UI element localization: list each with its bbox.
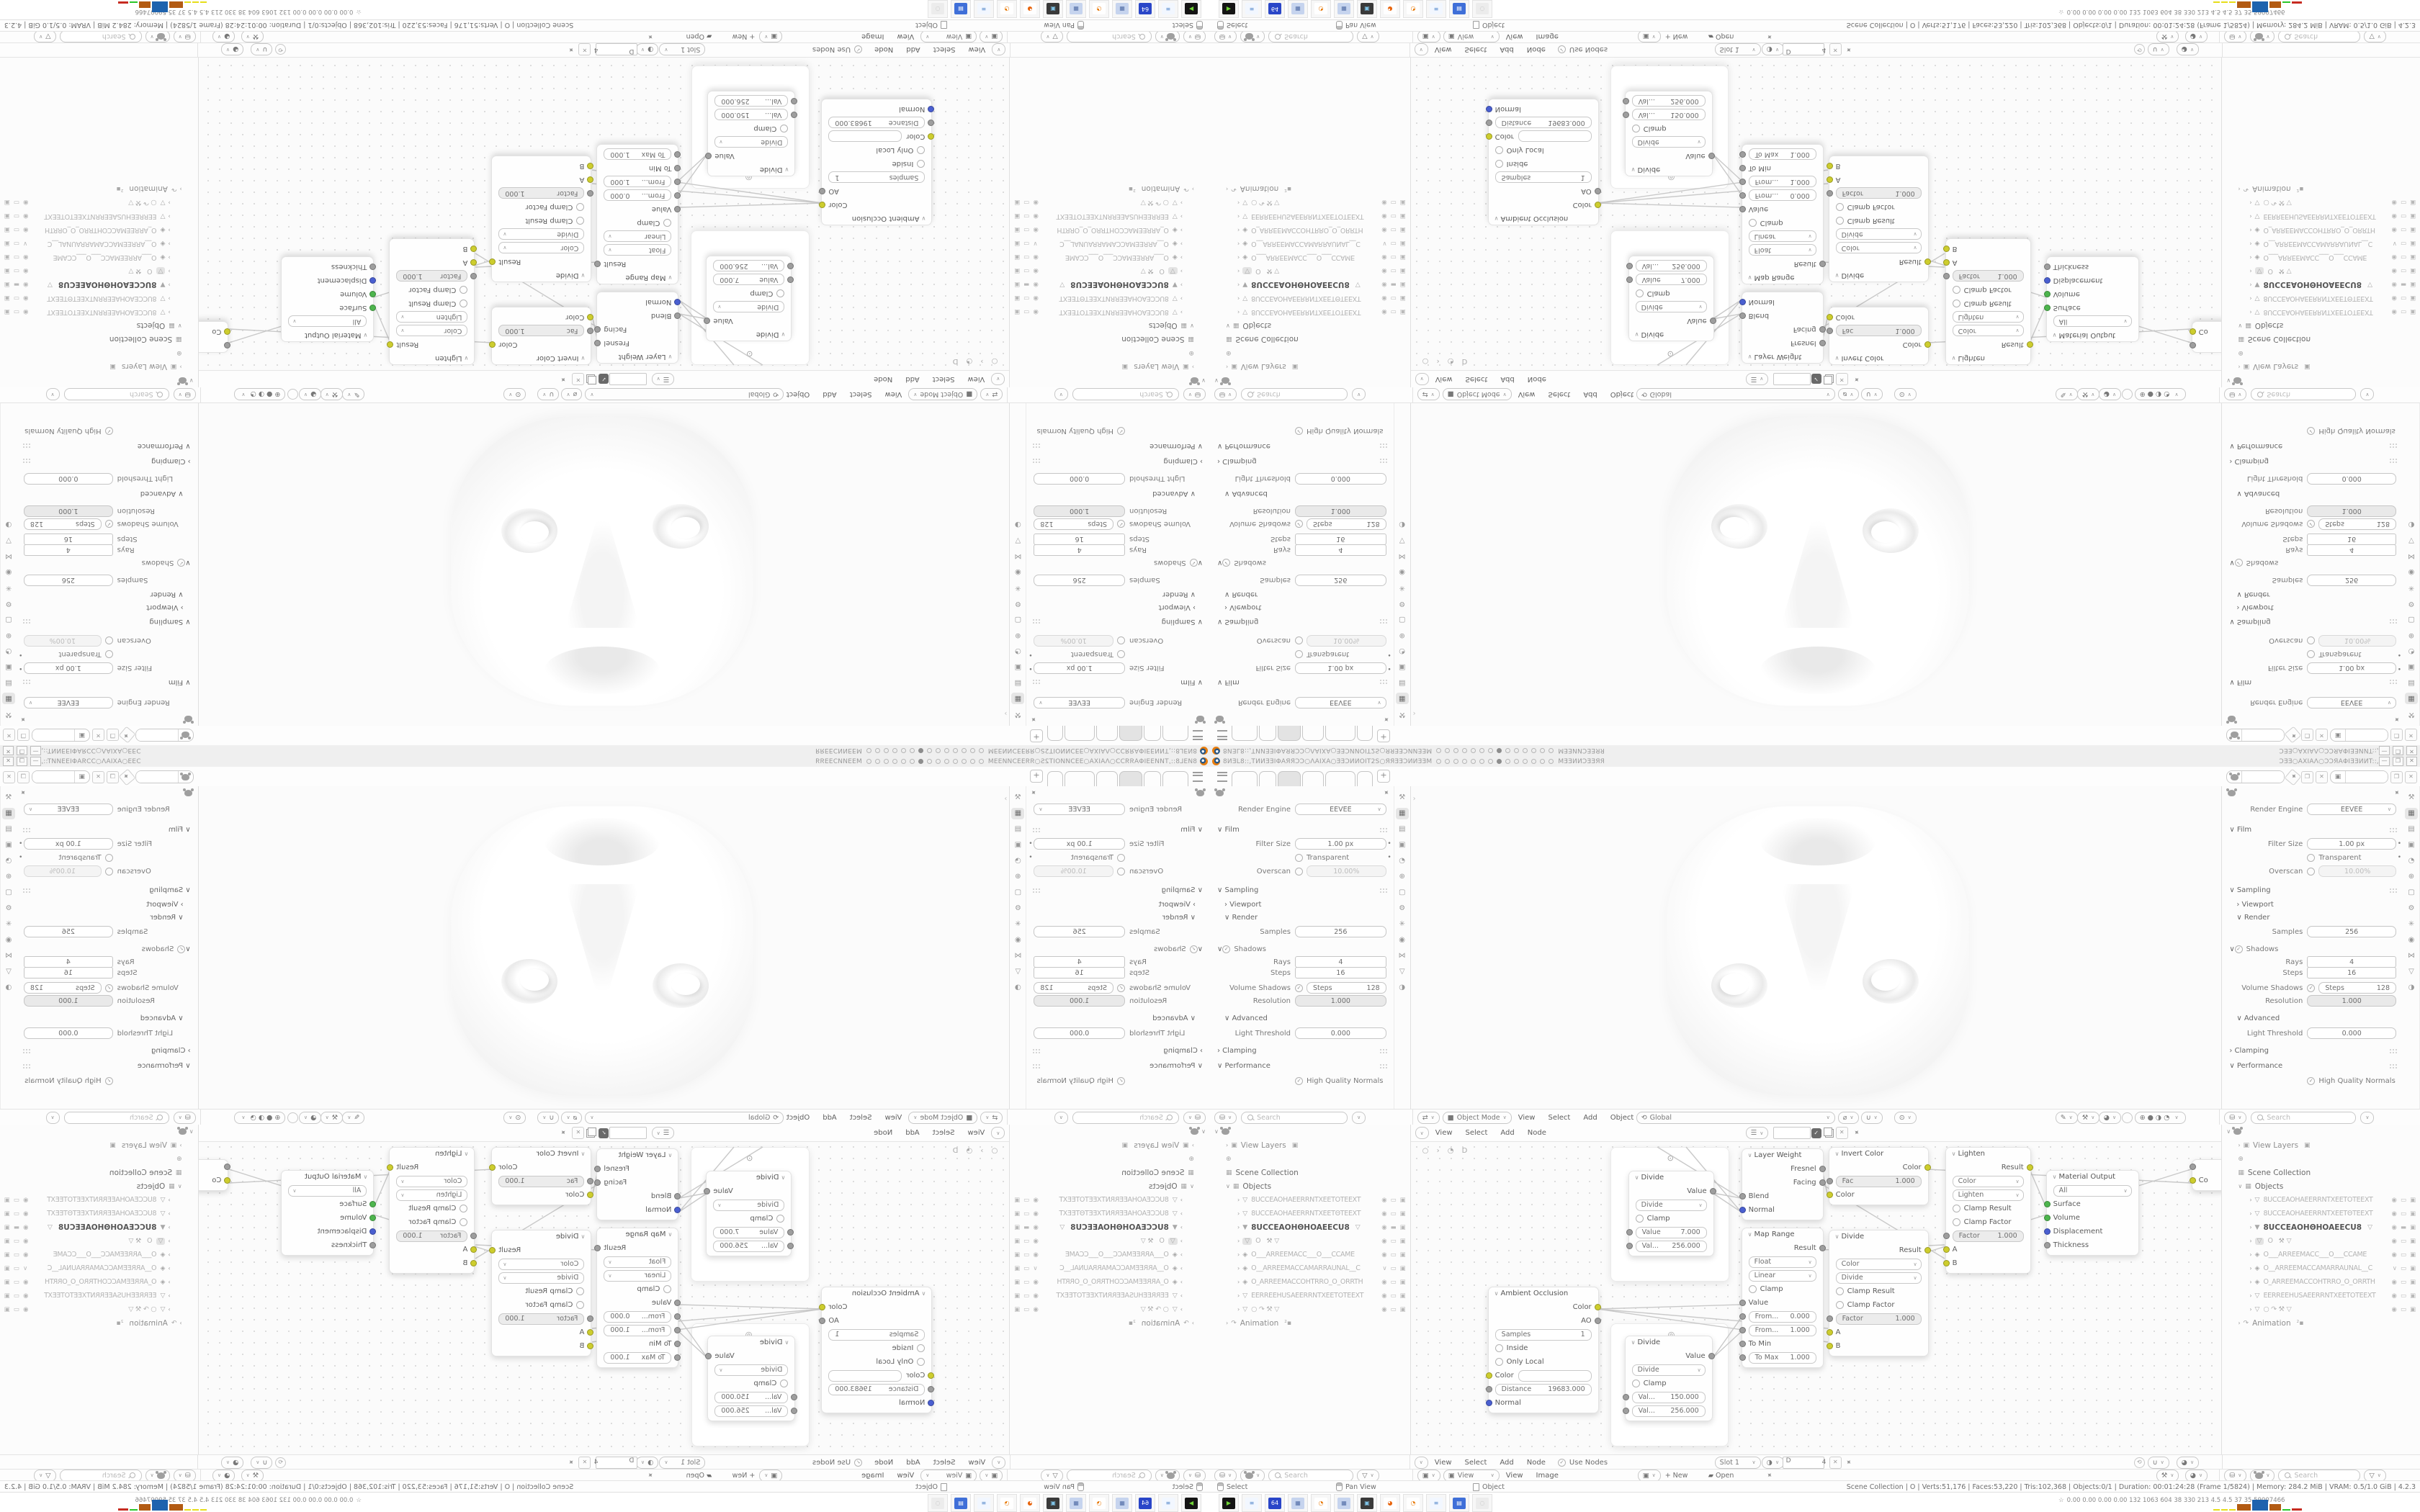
- menu-icon[interactable]: [1193, 730, 1203, 740]
- outliner-item-mesh[interactable]: ›▼8UCCEAOHΘHOAEECU8▽◉▬▣: [1010, 1220, 1210, 1234]
- input-socket[interactable]: [369, 291, 376, 297]
- visibility-toggles[interactable]: ◉▭▣: [1381, 1292, 1405, 1300]
- expand-caret[interactable]: ›: [1237, 1238, 1240, 1244]
- outliner-item-camera[interactable]: ›◈O_ARREEMACCOHTRRO_O_ORRTH◉▭▣: [1010, 1275, 1210, 1289]
- input-socket[interactable]: [224, 328, 230, 335]
- expand-caret[interactable]: ›: [168, 1197, 170, 1203]
- camera-icon[interactable]: ∨: [23, 1265, 27, 1272]
- scene-icon[interactable]: ◔: [1011, 855, 1024, 867]
- node-row-fac[interactable]: Fac1.000: [492, 1174, 591, 1188]
- shader-node-ambient-occlusion[interactable]: ∨Ambient OcclusionColorAOSamples1InsideO…: [1488, 99, 1599, 225]
- visibility-toggles[interactable]: ◉▭▣: [1381, 309, 1405, 316]
- expand-caret[interactable]: ›: [1237, 1197, 1240, 1203]
- checkbox[interactable]: [2307, 651, 2315, 659]
- constraints-icon[interactable]: ⋈: [1396, 950, 1409, 962]
- outliner-item-mesh[interactable]: ›▽8UCCEAOHAEERRNTXEETOTEEXT◉▭▣: [1210, 305, 1410, 319]
- expand-caret[interactable]: ›: [1237, 309, 1240, 315]
- input-socket[interactable]: [674, 299, 681, 305]
- node-select[interactable]: Color∨: [1836, 1259, 1922, 1270]
- outliner-item-anim[interactable]: ›↷Animation²▪: [1210, 1316, 1410, 1330]
- checkbox[interactable]: ✓: [1190, 559, 1198, 567]
- node-select[interactable]: Float∨: [604, 1256, 671, 1268]
- node-row-inside[interactable]: Inside: [822, 157, 931, 171]
- node-canvas[interactable]: ○ › ◔ Ⅾ ⊙◎∨DivideValueDivide∨ClampValue7…: [199, 58, 1010, 371]
- value-field[interactable]: 4: [2307, 956, 2396, 968]
- material-icon[interactable]: ◑: [1011, 518, 1024, 530]
- overlays-button[interactable]: ◕∨: [212, 31, 235, 43]
- expand-caret[interactable]: ›: [168, 1265, 170, 1272]
- outliner-item-camera[interactable]: ›◈O_ARREEMACCOHTRRO_O_ORRTH◉▭▣: [1210, 223, 1410, 237]
- image-name-field[interactable]: [32, 729, 74, 741]
- value-field[interactable]: 256: [1295, 575, 1386, 586]
- printer-blue-icon[interactable]: ▤: [1449, 1494, 1469, 1512]
- node-checkbox[interactable]: [917, 1344, 925, 1352]
- media-player-icon[interactable]: ▶: [1219, 1494, 1239, 1512]
- node-row-from-[interactable]: From...0.000: [597, 189, 678, 202]
- constraints-icon[interactable]: ⋈: [2, 550, 15, 562]
- node-select[interactable]: Divide∨: [498, 229, 584, 240]
- node-checkbox[interactable]: [1953, 286, 1960, 294]
- input-socket[interactable]: [1943, 1233, 1950, 1239]
- workspace-tab[interactable]: [1278, 726, 1301, 741]
- visibility-toggles[interactable]: ◉▭▣: [2392, 1279, 2416, 1286]
- output-socket[interactable]: [594, 1166, 601, 1172]
- expand-caret[interactable]: ›: [1180, 1210, 1183, 1217]
- fake-user-button[interactable]: ✓: [599, 374, 609, 384]
- expand-caret[interactable]: ›: [1192, 1142, 1194, 1148]
- visibility-toggles[interactable]: ◉▭▣: [2392, 1251, 2416, 1259]
- workspace-tab[interactable]: [1232, 771, 1258, 786]
- screen-icon[interactable]: ▭: [1023, 1279, 1029, 1286]
- expand-caret[interactable]: ›: [2238, 364, 2240, 370]
- menu-select[interactable]: Select: [1465, 46, 1487, 54]
- unlink-material-button[interactable]: ✕: [572, 1127, 584, 1139]
- xray-toggle[interactable]: [2122, 390, 2133, 400]
- blender-icon-2[interactable]: ◔: [997, 0, 1017, 18]
- node-row-distance[interactable]: Distance19683.000: [1489, 1382, 1598, 1396]
- node-value-field[interactable]: From...1.000: [604, 176, 671, 188]
- node-row-factor[interactable]: Factor1.000: [390, 269, 474, 283]
- node-select[interactable]: Divide∨: [1836, 229, 1922, 240]
- eye-icon[interactable]: ◉: [1033, 1224, 1038, 1231]
- xray-toggle[interactable]: [287, 390, 298, 400]
- menu-object[interactable]: Object: [1610, 1114, 1634, 1122]
- menu-node[interactable]: Node: [874, 1129, 892, 1137]
- pin-icon[interactable]: ✦: [1764, 32, 1773, 42]
- screen-icon[interactable]: ▭: [1023, 199, 1029, 207]
- value-field[interactable]: 16: [2307, 967, 2396, 978]
- node-row-from-[interactable]: From...0.000: [597, 1310, 678, 1323]
- value-field[interactable]: 4: [1295, 544, 1386, 556]
- outliner-item-mesh[interactable]: ›▽8UCCEAOHAEERRNTXEETΘTEEXT◉▭▣: [1010, 1207, 1210, 1220]
- visibility-toggles[interactable]: ◉▭▣: [1014, 1197, 1038, 1204]
- node-row-factor[interactable]: Factor1.000: [1946, 269, 2030, 283]
- node-canvas[interactable]: ○ › ◔ Ⅾ ⊙◎∨DivideValueDivide∨ClampValue7…: [199, 1141, 1010, 1454]
- editor-type-button[interactable]: ▣∨: [980, 1470, 1003, 1482]
- output-socket[interactable]: [1819, 1179, 1826, 1186]
- node-title[interactable]: ∨Map Range: [1742, 1228, 1823, 1241]
- node-row-clamp-result[interactable]: Clamp Result: [1946, 1202, 2030, 1215]
- camera-icon[interactable]: ▣: [4, 282, 10, 289]
- outliner-item-mesh[interactable]: ›▽8UCCEAOHAEERRNTXEETOTEEXT◉▭▣: [0, 305, 198, 319]
- value-field[interactable]: 1.00 px: [1295, 662, 1386, 674]
- input-socket[interactable]: [1623, 98, 1629, 104]
- camera-icon[interactable]: ▣: [2410, 240, 2416, 248]
- screen-icon[interactable]: ▭: [1391, 213, 1397, 220]
- expand-caret[interactable]: ›: [1192, 1320, 1194, 1326]
- mode-selector[interactable]: ■ Object Mode∨: [1443, 389, 1512, 401]
- output-socket[interactable]: [819, 1304, 825, 1310]
- screen-icon[interactable]: ▭: [1023, 227, 1029, 234]
- node-value-field[interactable]: Val...150.000: [1632, 1392, 1706, 1403]
- workspace-tab[interactable]: [1232, 726, 1258, 741]
- new-image-button[interactable]: + New: [732, 33, 756, 41]
- outliner-search-input[interactable]: Search: [1268, 31, 1353, 43]
- node-select[interactable]: Linear∨: [1749, 1270, 1816, 1282]
- screen-icon[interactable]: ▭: [1391, 1279, 1397, 1286]
- outliner-item-mesh[interactable]: ›▽8UCCEAOHAEERRNTXEETΘTEEXT◉▭▣: [2222, 1207, 2420, 1220]
- node-value-field[interactable]: Factor1.000: [1953, 271, 2024, 282]
- screen-icon[interactable]: ▭: [2401, 1279, 2406, 1286]
- input-socket[interactable]: [587, 1178, 593, 1184]
- screen-icon[interactable]: ▭: [14, 1251, 19, 1259]
- camera-icon[interactable]: ▣: [2410, 1238, 2416, 1245]
- section-header[interactable]: › Viewport: [1159, 604, 1210, 612]
- node-row-clamp-result[interactable]: Clamp Result: [390, 297, 474, 310]
- editor-type-button[interactable]: ⇄∨: [1417, 389, 1440, 401]
- output-icon[interactable]: ▤: [2, 677, 15, 688]
- shader-node-lighten[interactable]: ∨LightenResultColor∨Lighten∨Clamp Result…: [1945, 238, 2031, 365]
- minimize-button[interactable]: —: [30, 746, 41, 755]
- material-icon[interactable]: ◑: [1011, 982, 1024, 994]
- expand-caret[interactable]: ›: [1237, 295, 1240, 302]
- checkbox[interactable]: ✓: [177, 945, 185, 953]
- node-row-val-[interactable]: Val...256.000: [708, 94, 794, 108]
- expand-panel-icon[interactable]: ›: [1413, 795, 1416, 803]
- pin-icon[interactable]: ✦: [1843, 45, 1852, 55]
- output-socket[interactable]: [594, 340, 601, 346]
- output-socket[interactable]: [594, 1245, 601, 1251]
- node-value-field[interactable]: Samples1: [828, 1329, 925, 1341]
- node-value-field[interactable]: Value7.000: [1636, 274, 1707, 286]
- shader-node-divide-color[interactable]: ∨DivideResultColor∨Divide∨Clamp ResultCl…: [1829, 1230, 1929, 1356]
- screen-icon[interactable]: ▬: [14, 1224, 19, 1231]
- input-socket[interactable]: [2190, 1177, 2196, 1184]
- screen-icon[interactable]: ▭: [1023, 1292, 1029, 1300]
- camera-icon[interactable]: ▣: [4, 309, 10, 316]
- output-socket[interactable]: [705, 153, 712, 159]
- node-title[interactable]: ∨Map Range: [597, 1228, 678, 1241]
- output-socket[interactable]: [2027, 1164, 2033, 1171]
- output-icon[interactable]: ▤: [1011, 677, 1024, 688]
- screen-icon[interactable]: ▭: [2401, 1265, 2406, 1272]
- decorator-dot[interactable]: •: [1387, 651, 1391, 658]
- particles-icon[interactable]: ✳: [1396, 919, 1409, 930]
- node-row-divide[interactable]: Divide∨: [492, 1271, 591, 1284]
- menu-view[interactable]: View: [885, 391, 902, 399]
- visibility-toggles[interactable]: ∨▭▣: [1014, 240, 1037, 248]
- outliner-search-input[interactable]: Search: [64, 389, 169, 401]
- node-row-clamp-result[interactable]: Clamp Result: [492, 1284, 591, 1298]
- camera-icon[interactable]: ▣: [1400, 1292, 1406, 1300]
- monitor-app-icon[interactable]: ▣: [1043, 1494, 1063, 1512]
- pin-icon[interactable]: ✦: [2391, 714, 2401, 724]
- printer-blue-icon[interactable]: ▤: [951, 0, 971, 18]
- node-row-clamp-factor[interactable]: Clamp Factor: [1946, 283, 2030, 297]
- physics-icon[interactable]: ◉: [1011, 935, 1024, 946]
- outliner-item-viewlayer[interactable]: ›▣View Layers▣: [1010, 1138, 1210, 1152]
- screen-icon[interactable]: ▬: [14, 282, 19, 289]
- outliner-item-mesh[interactable]: ›▽EERREEHUSAEERRNTXEETOTEEXT◉▭▣: [1010, 1289, 1210, 1302]
- outliner-filter-button[interactable]: ∨: [2360, 1112, 2374, 1124]
- collapse-caret[interactable]: ∨: [363, 332, 367, 338]
- material-name-field[interactable]: Ⅾ: [1783, 1457, 1824, 1469]
- eye-icon[interactable]: ◉: [2392, 295, 2397, 302]
- visibility-toggles[interactable]: ◉▭▣: [1381, 1238, 1405, 1245]
- node-title[interactable]: ∨Divide: [1829, 269, 1928, 282]
- input-socket[interactable]: [369, 305, 376, 311]
- image-view-mode[interactable]: ▣ View∨: [1443, 31, 1500, 43]
- section-header[interactable]: ∨ Advanced: [1210, 1014, 1268, 1022]
- output-icon[interactable]: ▤: [1396, 677, 1409, 688]
- visibility-toggles[interactable]: ◉▭▣: [1014, 213, 1038, 220]
- screen-icon[interactable]: ▬: [1023, 282, 1029, 289]
- outliner-item-mesh[interactable]: ›▽○ ↷ ⚒ ▽◉▭▣: [1210, 196, 1410, 210]
- maximize-button[interactable]: ❐: [17, 757, 27, 766]
- node-row-color[interactable]: Color∨: [1829, 1257, 1928, 1271]
- outliner-item-mesh[interactable]: ›▼8UCCEAOHΘHOAEECU8▽◉▬▣: [1210, 278, 1410, 292]
- color-swatch-field[interactable]: [828, 1370, 902, 1382]
- node-checkbox[interactable]: [460, 286, 467, 294]
- visibility-toggles[interactable]: ◉▭▣: [4, 268, 28, 275]
- shader-node-invert-color[interactable]: ∨Invert ColorColorFac1.000Color: [491, 307, 591, 365]
- mode-selector[interactable]: ■ Object Mode∨: [908, 389, 977, 401]
- node-row-factor[interactable]: Factor1.000: [1829, 1312, 1928, 1326]
- screen-icon[interactable]: ▭: [1023, 213, 1029, 220]
- output-socket[interactable]: [819, 202, 825, 208]
- expand-caret[interactable]: ›: [168, 227, 170, 233]
- section-header[interactable]: ∨ Advanced: [140, 1014, 198, 1022]
- node-title[interactable]: ∨Layer Weight: [597, 350, 678, 363]
- blender-icon-2[interactable]: ◔: [997, 1494, 1017, 1512]
- close-button[interactable]: ✕: [2406, 746, 2417, 755]
- section-header[interactable]: ∨ Render: [151, 591, 198, 599]
- editor-type-button[interactable]: ▣∨: [980, 31, 1003, 43]
- checkbox[interactable]: ✓: [1117, 428, 1125, 436]
- maximize-button[interactable]: ❐: [2393, 757, 2403, 766]
- section-header[interactable]: ∨ Sampling: [1210, 886, 1258, 894]
- input-socket[interactable]: [224, 342, 230, 348]
- use-nodes-checkbox[interactable]: ✓: [854, 1459, 862, 1467]
- section-header[interactable]: ∨ Render: [151, 914, 198, 922]
- particles-icon[interactable]: ✳: [2405, 582, 2418, 593]
- menu-view[interactable]: View: [897, 33, 914, 41]
- shader-node-material-output[interactable]: ∨Material OutputAll∨SurfaceVolumeDisplac…: [281, 1170, 374, 1256]
- node-row-factor[interactable]: Factor1.000: [1829, 186, 1928, 200]
- screen-icon[interactable]: ▭: [14, 295, 19, 302]
- eye-icon[interactable]: ◉: [1381, 268, 1386, 275]
- checkbox[interactable]: [105, 651, 113, 659]
- notepad-icon[interactable]: ≡: [1158, 0, 1178, 18]
- expand-caret[interactable]: ›: [2249, 309, 2251, 315]
- eye-icon[interactable]: ◉: [1381, 254, 1386, 261]
- shader-node-clipped-node[interactable]: Co: [2192, 321, 2222, 353]
- tool-icon[interactable]: ⚒: [2, 792, 15, 804]
- expand-caret[interactable]: ›: [168, 240, 170, 247]
- checkbox[interactable]: ✓: [1295, 1077, 1303, 1085]
- eye-icon[interactable]: ◉: [1381, 1279, 1386, 1286]
- outliner-item-mesh[interactable]: ›▼8UCCEAOHΘHOAEECU8▽◉▬▣: [1010, 278, 1210, 292]
- gizmo-button[interactable]: ⚒∨: [241, 1470, 264, 1482]
- output-socket[interactable]: [387, 1164, 393, 1171]
- collapse-caret[interactable]: ∨: [1748, 354, 1752, 360]
- node-row-only-local[interactable]: Only Local: [822, 1355, 931, 1369]
- material-icon[interactable]: ◑: [2, 518, 15, 530]
- shader-node-material-output[interactable]: ∨Material OutputAll∨SurfaceVolumeDisplac…: [281, 256, 374, 342]
- camera-icon[interactable]: ▣: [1014, 213, 1020, 220]
- shader-node-map-range[interactable]: ∨Map RangeResultFloat∨Linear∨ClampValueF…: [596, 1228, 678, 1368]
- section-header[interactable]: ∨ Film: [2222, 679, 2251, 687]
- input-socket[interactable]: [1626, 1243, 1633, 1249]
- image-view-mode[interactable]: ▣ View∨: [920, 31, 977, 43]
- outliner-search-input[interactable]: Search: [2278, 1470, 2360, 1482]
- node-select[interactable]: Divide∨: [714, 137, 788, 148]
- outliner-item-camera[interactable]: ›◈O__ARREEMACCAMARRAUNAL__C∨▭▣: [2222, 1261, 2420, 1275]
- gizmo-button[interactable]: ⚒∨: [2077, 389, 2100, 401]
- camera-icon[interactable]: ▣: [1400, 1210, 1406, 1218]
- notepad-icon-2[interactable]: ≡: [974, 1494, 994, 1512]
- node-value-field[interactable]: Val...150.000: [714, 1392, 788, 1403]
- screen-icon[interactable]: ▭: [2401, 254, 2406, 261]
- node-row-clamp[interactable]: Clamp: [708, 1377, 794, 1390]
- transform-orientation[interactable]: ⟲ Global∨: [585, 389, 784, 401]
- eye-icon[interactable]: ◉: [23, 1292, 28, 1300]
- physics-icon[interactable]: ◉: [1011, 566, 1024, 577]
- workspace-tab[interactable]: [1096, 726, 1118, 741]
- value-field[interactable]: 4: [1295, 956, 1386, 968]
- calculator-icon-2[interactable]: ▦: [1066, 1494, 1086, 1512]
- firefox-icon[interactable]: ◕: [1380, 0, 1400, 18]
- input-socket[interactable]: [2044, 264, 2051, 270]
- camera-icon[interactable]: ▣: [1400, 240, 1406, 248]
- value-field[interactable]: 0.000: [1034, 1027, 1125, 1039]
- output-socket[interactable]: [1924, 1247, 1931, 1254]
- overlays-button[interactable]: ◕∨: [2099, 389, 2121, 401]
- outliner-display-mode[interactable]: ⛁∨: [1214, 389, 1237, 401]
- outliner-item-mesh[interactable]: ›▽O⚒ ▽◉▭▣: [0, 264, 198, 278]
- outliner-item-collection[interactable]: ∨▦Objects: [0, 1179, 198, 1193]
- node-checkbox[interactable]: [1495, 1344, 1503, 1352]
- outliner-item-mesh[interactable]: ›▽○ ↷ ⚒ ▽◉▭▣: [1210, 1302, 1410, 1316]
- menu-icon[interactable]: [1193, 772, 1203, 782]
- collapse-caret[interactable]: ∨: [1631, 166, 1636, 173]
- overlays-button[interactable]: ◕∨: [212, 1470, 235, 1482]
- collapse-caret[interactable]: ∨: [784, 1339, 789, 1346]
- input-socket[interactable]: [928, 120, 934, 126]
- gimp-gray-icon[interactable]: ◌: [928, 0, 948, 18]
- section-header[interactable]: › Viewport: [146, 604, 197, 612]
- refresh-icon[interactable]: ⟲: [275, 1457, 286, 1468]
- camera-icon[interactable]: ▣: [1014, 1279, 1020, 1286]
- camera-icon[interactable]: ▣: [2410, 1279, 2416, 1286]
- node-row-factor[interactable]: Factor1.000: [492, 1312, 591, 1326]
- shading-mode-buttons[interactable]: ⊕●◑◔∨: [234, 1112, 285, 1124]
- floppy-64-icon[interactable]: 64: [1135, 1494, 1155, 1512]
- node-canvas[interactable]: ○ › ◔ Ⅾ ⊙◎∨DivideValueDivide∨ClampValue7…: [1411, 1141, 2222, 1454]
- screen-icon[interactable]: ▭: [1391, 254, 1397, 261]
- expand-caret[interactable]: ›: [1226, 364, 1228, 370]
- input-socket[interactable]: [369, 1242, 376, 1248]
- node-value-field[interactable]: Fac1.000: [498, 325, 584, 337]
- media-player-icon[interactable]: ▶: [1219, 0, 1239, 18]
- modifiers-icon[interactable]: ⚙: [1396, 598, 1409, 609]
- outliner-item-anim[interactable]: ›↷Animation²▪: [0, 182, 198, 196]
- output-socket[interactable]: [819, 1318, 825, 1324]
- value-field[interactable]: Steps128: [1034, 518, 1113, 530]
- modifiers-icon[interactable]: ⚙: [1011, 598, 1024, 609]
- refresh-icon[interactable]: ⟲: [2134, 1457, 2145, 1468]
- outliner-item-mesh[interactable]: ›▽O⚒ ▽◉▭▣: [2222, 264, 2420, 278]
- value-field[interactable]: 1.00 px: [24, 838, 113, 850]
- transform-orientation[interactable]: ⟲ Global∨: [585, 1112, 784, 1124]
- output-socket[interactable]: [1819, 1166, 1826, 1172]
- node-value-field[interactable]: Factor1.000: [1953, 1230, 2024, 1242]
- modifiers-icon[interactable]: ⚙: [2, 903, 15, 914]
- decorator-dot[interactable]: •: [1387, 840, 1391, 847]
- unlink-material-button[interactable]: ✕: [572, 373, 584, 385]
- screen-icon[interactable]: ▭: [1391, 1251, 1397, 1259]
- node-row-color[interactable]: Color: [1489, 130, 1598, 143]
- outliner-item-anim[interactable]: ›↷Animation²▪: [1010, 182, 1210, 196]
- expand-caret[interactable]: ∨: [189, 377, 194, 384]
- copy-icon[interactable]: ❐: [2301, 729, 2313, 742]
- input-socket[interactable]: [587, 328, 593, 334]
- value-field[interactable]: EEVEE∨: [1034, 697, 1125, 708]
- eye-icon[interactable]: ◉: [1033, 309, 1038, 316]
- camera-icon[interactable]: ▣: [2410, 1306, 2416, 1313]
- screen-icon[interactable]: ▭: [2401, 268, 2406, 275]
- browse-material-button[interactable]: ◑∨: [1762, 1457, 1784, 1469]
- pin-icon[interactable]: ✦: [2391, 788, 2401, 798]
- expand-caret[interactable]: ›: [1180, 1197, 1183, 1203]
- visibility-toggles[interactable]: ◉▭▣: [4, 1197, 28, 1204]
- outliner-item-scene[interactable]: ∨: [1010, 374, 1210, 387]
- input-socket[interactable]: [1626, 276, 1633, 283]
- outliner-search-input[interactable]: Search: [64, 1112, 169, 1124]
- node-value-field[interactable]: Val...256.000: [713, 1241, 784, 1252]
- printer-blue-icon[interactable]: ▤: [1449, 0, 1469, 18]
- annotate-button[interactable]: ✎∨: [2056, 389, 2078, 401]
- input-socket[interactable]: [1943, 273, 1950, 279]
- shader-node-layer-weight[interactable]: ∨Layer WeightFresnelFacingBlendNormal: [1742, 292, 1824, 364]
- outliner-item-collection[interactable]: ∨▦Objects: [1210, 319, 1410, 333]
- camera-icon[interactable]: ▣: [1400, 268, 1406, 275]
- input-socket[interactable]: [1626, 1229, 1633, 1236]
- expand-caret[interactable]: ›: [2238, 1320, 2240, 1326]
- expand-caret[interactable]: ›: [2249, 254, 2251, 261]
- outliner-item-collection[interactable]: ∨▦Objects: [1010, 1179, 1210, 1193]
- value-field[interactable]: 256: [24, 575, 113, 586]
- value-field[interactable]: 16: [1295, 534, 1386, 545]
- menu-add[interactable]: Add: [823, 391, 836, 399]
- expand-caret[interactable]: ›: [1237, 1224, 1240, 1230]
- collapse-caret[interactable]: ∨: [1494, 215, 1499, 222]
- outliner-search-input[interactable]: Search: [1072, 389, 1179, 401]
- minimize-button[interactable]: —: [2379, 746, 2390, 755]
- material-icon[interactable]: ◑: [2405, 982, 2418, 994]
- section-header[interactable]: › Clamping: [151, 458, 198, 466]
- node-value-field[interactable]: Val...150.000: [714, 109, 788, 121]
